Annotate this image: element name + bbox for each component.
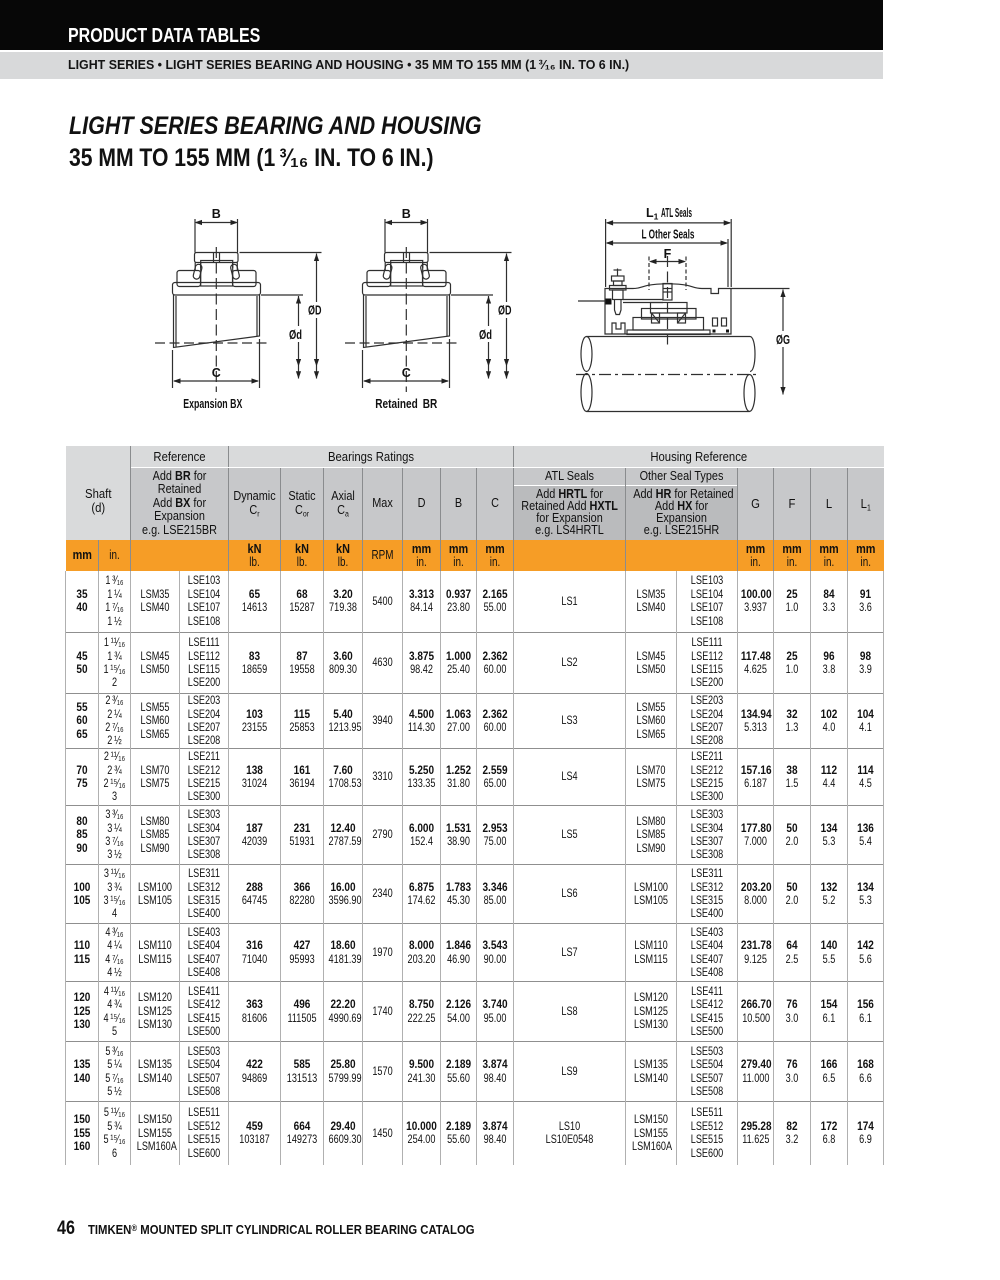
svg-text:ØD: ØD <box>308 304 322 318</box>
svg-text:ØD: ØD <box>498 304 512 318</box>
svg-text:B: B <box>402 207 411 221</box>
svg-text:L Other Seals: L Other Seals <box>642 228 695 242</box>
svg-text:L1: L1 <box>646 206 659 222</box>
svg-text:C: C <box>402 366 411 380</box>
svg-text:C: C <box>212 366 221 380</box>
svg-text:ATL Seals: ATL Seals <box>661 206 692 220</box>
svg-text:ØG: ØG <box>776 333 790 347</box>
svg-text:B: B <box>212 207 221 221</box>
svg-text:Expansion BX: Expansion BX <box>183 397 242 411</box>
svg-text:Retained BR: Retained BR <box>375 397 437 411</box>
svg-text:Ød: Ød <box>289 328 302 342</box>
svg-text:Ød: Ød <box>479 328 492 342</box>
